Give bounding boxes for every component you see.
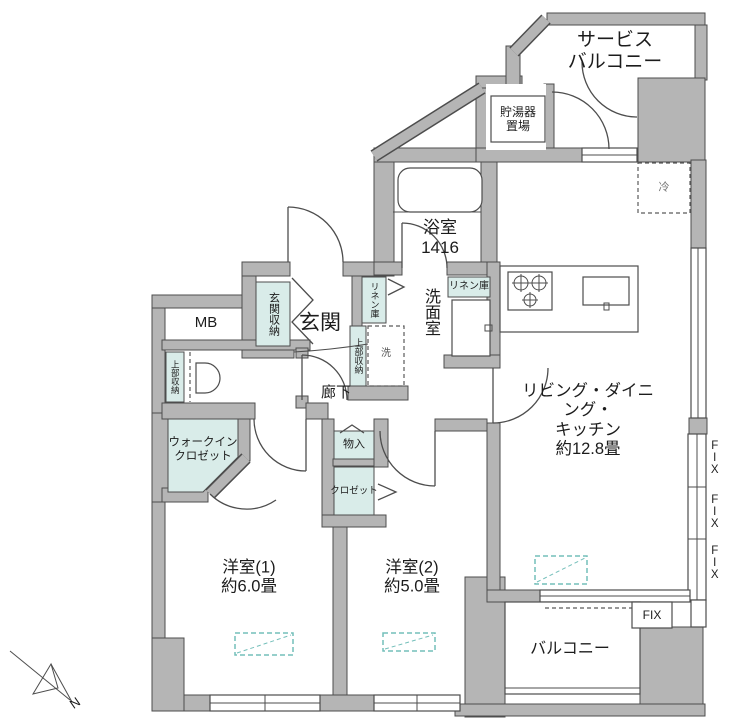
label-bedroom1: 洋室(1) 約6.0畳 xyxy=(221,559,277,598)
label-bathroom: 浴室 1416 xyxy=(421,218,459,258)
furniture-marker-bedroom1 xyxy=(235,633,293,655)
kitchen-counter xyxy=(500,266,638,332)
label-balcony: バルコニー xyxy=(530,641,610,660)
label-upper-storage-toilet: 上部収納 xyxy=(171,360,180,394)
label-service-balcony: サービス バルコニー xyxy=(568,30,663,75)
label-corridor: 廊下 xyxy=(321,384,351,402)
label-fridge: 冷 xyxy=(659,182,670,195)
label-walk-in-closet: ウォークイン クロゼット xyxy=(169,436,238,463)
label-entrance: 玄関 xyxy=(299,312,341,337)
label-ldk: リビング・ダイニング・ キッチン 約12.8畳 xyxy=(517,382,660,460)
floor-plan-svg xyxy=(0,0,731,720)
furniture-marker-ldk xyxy=(535,556,587,584)
label-washer: 洗 xyxy=(381,348,391,360)
floor-plan: サービス バルコニー 貯湯器 置場 浴室 1416 洗面室 リネン庫 リネン庫 … xyxy=(0,0,731,720)
label-fix-vertical-3: FIX xyxy=(708,545,720,581)
furniture-marker-bedroom2 xyxy=(383,633,435,651)
walk-in-closet-door xyxy=(210,494,276,509)
label-upper-storage-laundry: 上部収納 xyxy=(354,338,363,374)
compass-icon xyxy=(10,651,72,702)
vanity-unit xyxy=(452,300,492,356)
label-linen-right: リネン庫 xyxy=(449,281,489,293)
kitchen-sink xyxy=(583,277,629,305)
label-water-heater: 貯湯器 置場 xyxy=(500,105,536,133)
label-fix-vertical-2: FIX xyxy=(708,494,720,530)
service-balcony-doors xyxy=(552,62,637,149)
entrance-door xyxy=(288,207,343,262)
label-linen-left: リネン庫 xyxy=(370,282,379,318)
label-washroom: 洗面室 xyxy=(422,288,438,336)
label-fix-vertical-1: FIX xyxy=(708,440,720,476)
label-mb: MB xyxy=(195,314,218,332)
label-entrance-storage: 玄関収納 xyxy=(268,292,279,336)
label-bedroom2: 洋室(2) 約5.0畳 xyxy=(384,559,440,598)
label-storage: 物入 xyxy=(343,439,365,452)
washroom-folding-door xyxy=(388,279,404,295)
toilet xyxy=(190,352,220,402)
label-fix-horizontal: FIX xyxy=(643,608,662,622)
bedroom1-door xyxy=(254,419,306,471)
label-closet: クロゼット xyxy=(330,485,378,496)
closet-folding-door xyxy=(378,484,396,500)
bathtub xyxy=(393,168,482,212)
